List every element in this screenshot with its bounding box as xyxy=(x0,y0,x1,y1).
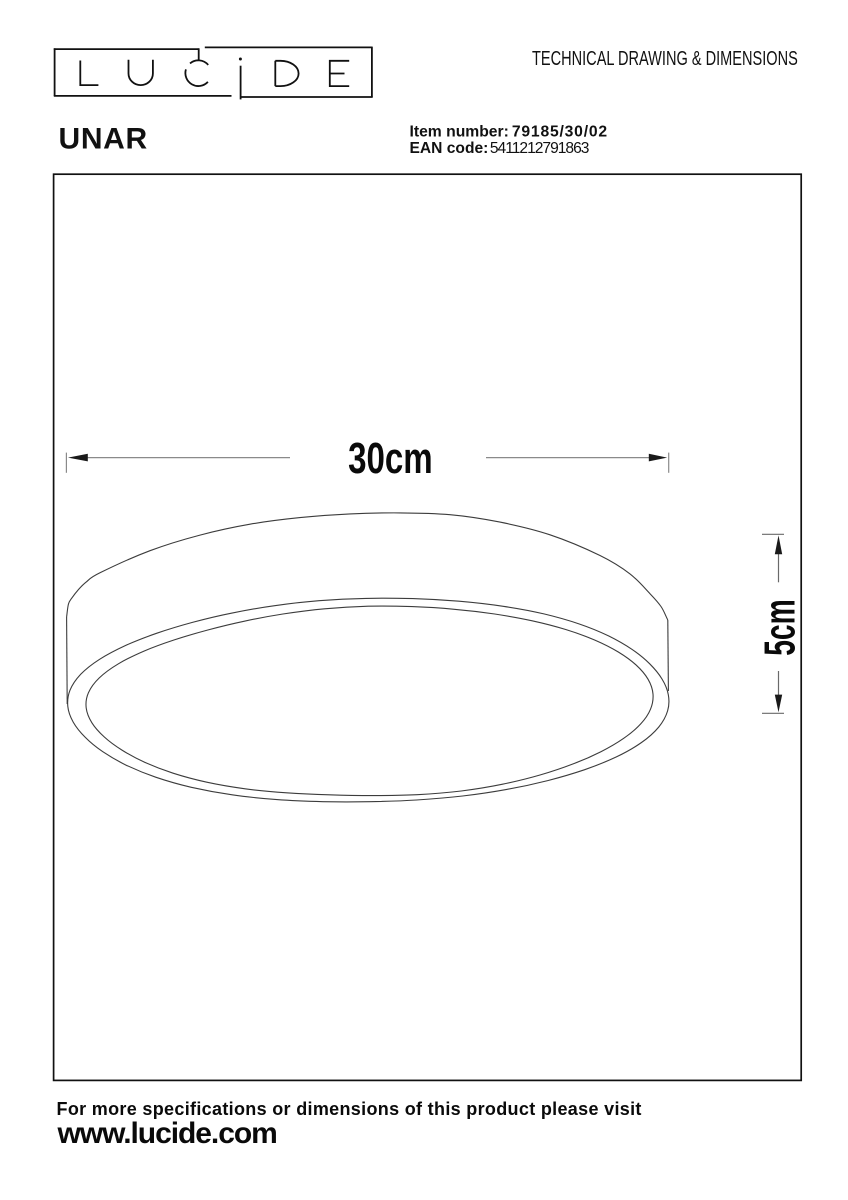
svg-text:5cm: 5cm xyxy=(755,599,804,656)
svg-text:Item number:79185/30/02: Item number:79185/30/02 xyxy=(410,123,608,140)
svg-text:UNAR: UNAR xyxy=(59,122,148,155)
svg-text:EAN code:5411212791863: EAN code:5411212791863 xyxy=(410,140,589,157)
svg-text:TECHNICAL DRAWING & DIMENSIONS: TECHNICAL DRAWING & DIMENSIONS xyxy=(532,47,798,70)
svg-text:30cm: 30cm xyxy=(348,435,433,483)
svg-text:For more specifications or dim: For more specifications or dimensions of… xyxy=(57,1099,642,1119)
svg-text:www.lucide.com: www.lucide.com xyxy=(57,1117,277,1150)
